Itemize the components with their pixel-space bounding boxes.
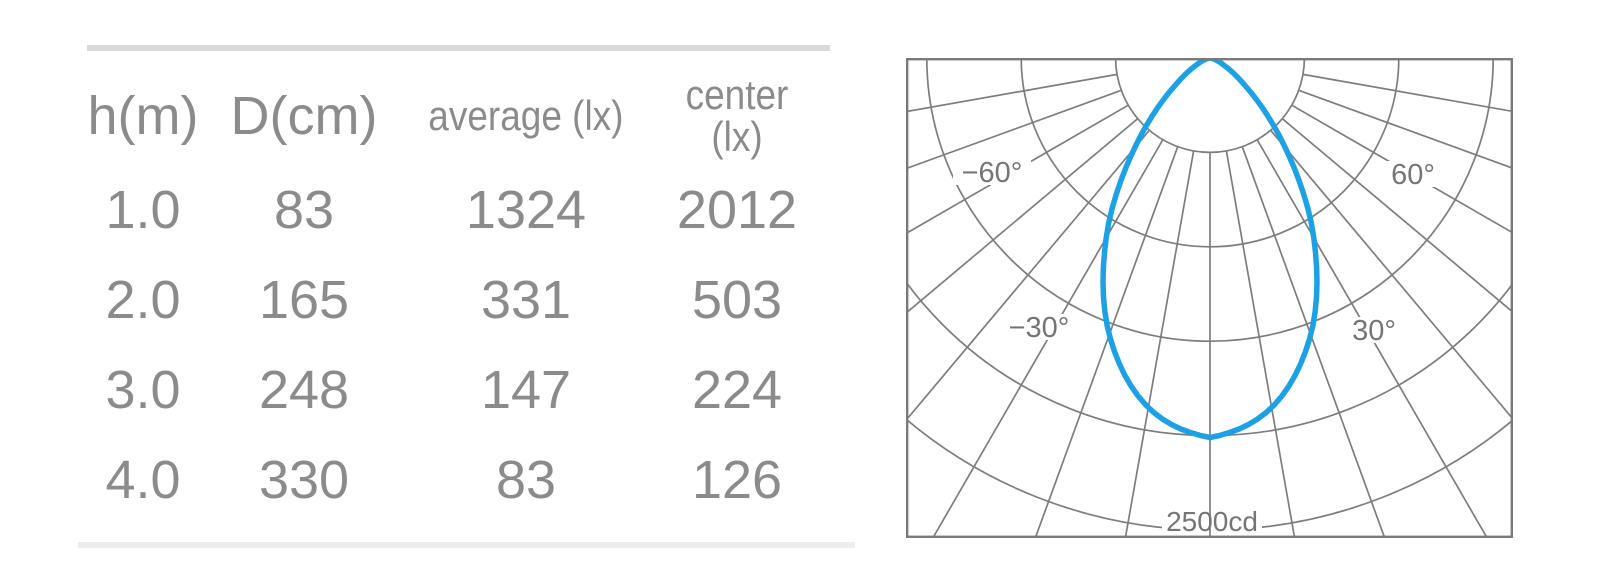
table-cell: 3.0	[85, 363, 201, 417]
polar-ring	[1116, 58, 1305, 152]
angle-label: 60°	[1391, 159, 1435, 191]
table-cell: 503	[645, 273, 829, 327]
ring-label: 2500cd	[1166, 506, 1258, 537]
photometric-sheet: { "page": { "background": "#ffffff" }, "…	[0, 0, 1600, 576]
table-cell: 1324	[407, 183, 645, 237]
table-cell: 2.0	[85, 273, 201, 327]
table-row: 3.0248147224	[85, 345, 829, 435]
table-cell: 147	[407, 363, 645, 417]
column-header-average: average (lx)	[407, 95, 645, 137]
table-row: 2.0165331503	[85, 255, 829, 345]
table-cell: 126	[645, 453, 829, 507]
table-cell: 165	[201, 273, 407, 327]
polar-chart-panel: −60°60°−30°30°2500cd	[906, 58, 1513, 538]
angle-label: −30°	[1009, 312, 1070, 344]
table-cell: 83	[201, 183, 407, 237]
table-cell: 2012	[645, 183, 829, 237]
photometric-table: h(m) D(cm) average (lx) center (lx) 1.08…	[85, 0, 829, 576]
angle-label: 30°	[1352, 315, 1396, 347]
column-header-h: h(m)	[85, 89, 201, 143]
table-cell: 4.0	[85, 453, 201, 507]
table-cell: 248	[201, 363, 407, 417]
column-header-center: center (lx)	[645, 74, 829, 158]
table-row: 1.08313242012	[85, 165, 829, 255]
angle-label: −60°	[962, 157, 1023, 189]
table-cell: 224	[645, 363, 829, 417]
table-top-rule	[87, 45, 830, 51]
polar-distribution-chart: −60°60°−30°30°2500cd	[906, 58, 1513, 538]
polar-radial-line	[1299, 90, 1513, 331]
polar-radial-line	[1071, 151, 1194, 538]
table-row: 4.033083126	[85, 435, 829, 525]
table-cell: 330	[201, 453, 407, 507]
polar-radial-line	[906, 90, 1121, 331]
table-header-row: h(m) D(cm) average (lx) center (lx)	[85, 71, 829, 161]
table-cell: 331	[407, 273, 645, 327]
polar-radial-line	[1226, 151, 1349, 538]
table-cell: 1.0	[85, 183, 201, 237]
column-header-d: D(cm)	[201, 89, 407, 143]
table-bottom-rule	[78, 542, 855, 548]
table-cell: 83	[407, 453, 645, 507]
